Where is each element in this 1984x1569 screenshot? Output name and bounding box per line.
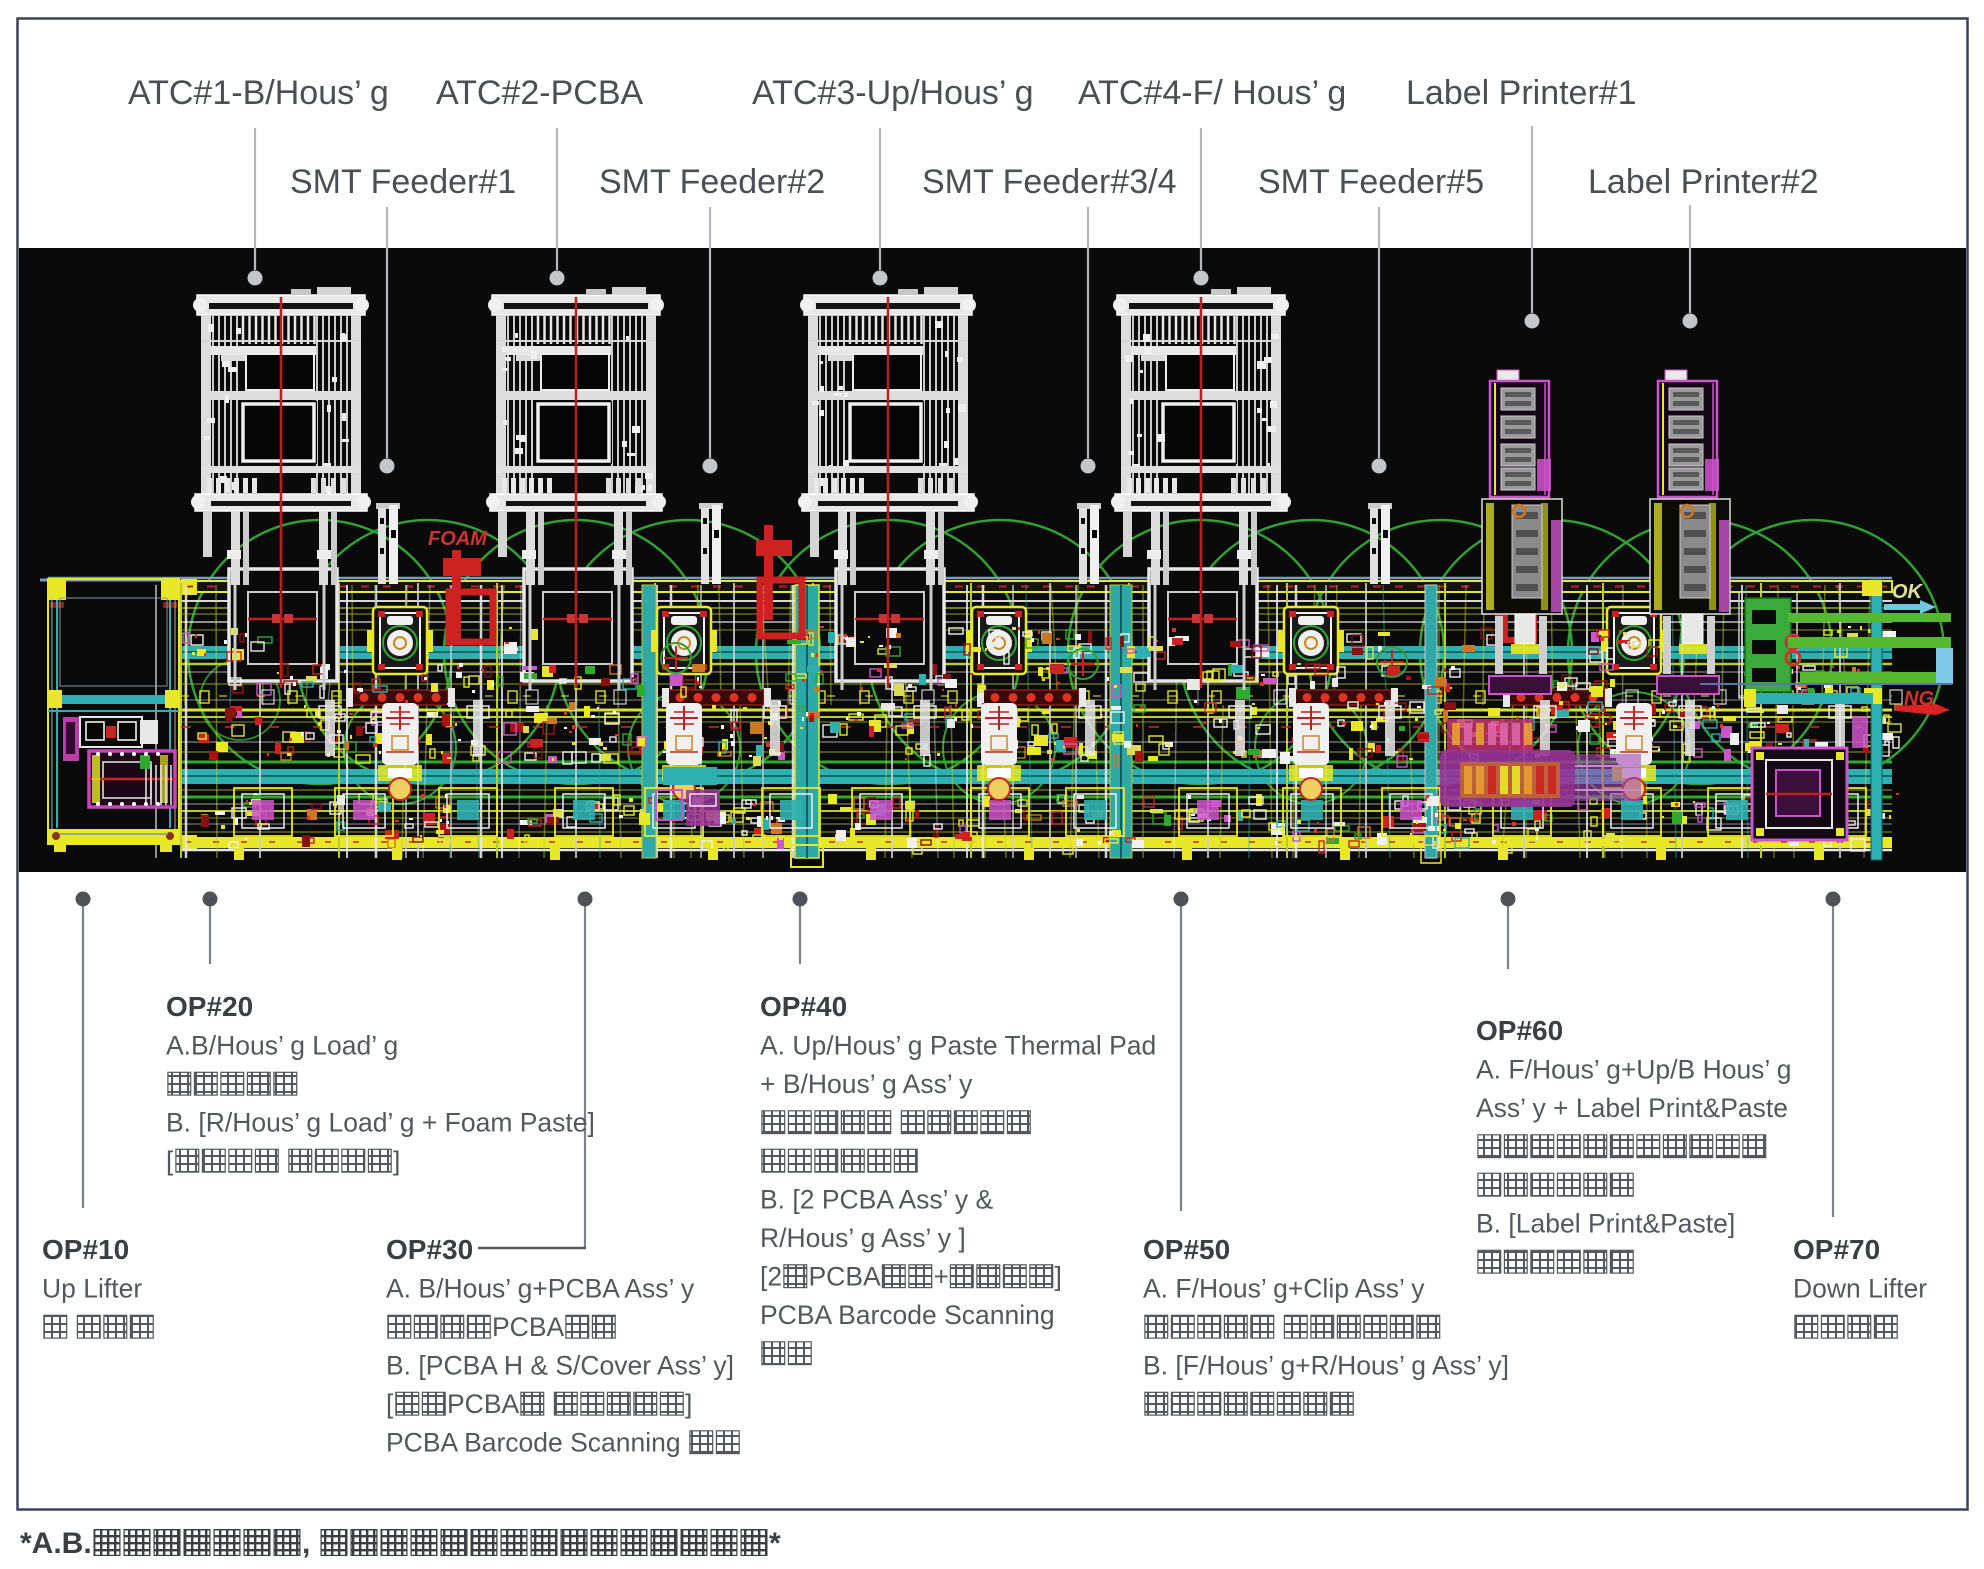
- svg-text:PCBA: PCBA: [447, 1389, 519, 1419]
- svg-text:SMT Feeder#3/4: SMT Feeder#3/4: [922, 163, 1177, 201]
- svg-text:OP#60: OP#60: [1476, 1015, 1563, 1046]
- svg-text:A. F/Hous’ g+Up/B Hous’ g: A. F/Hous’ g+Up/B Hous’ g: [1476, 1055, 1791, 1085]
- svg-text:]: ]: [1055, 1262, 1062, 1292]
- svg-text:B. [PCBA H & S/Cover Ass’ y]: B. [PCBA H & S/Cover Ass’ y]: [386, 1351, 734, 1381]
- svg-text:SMT Feeder#2: SMT Feeder#2: [599, 163, 825, 201]
- svg-text:A. Up/Hous’ g Paste Thermal Pa: A. Up/Hous’ g Paste Thermal Pad: [760, 1031, 1156, 1061]
- svg-text:Down Lifter: Down Lifter: [1793, 1274, 1927, 1304]
- svg-text:ATC#1-B/Hous’ g: ATC#1-B/Hous’ g: [128, 74, 389, 112]
- svg-text:+ B/Hous’ g Ass’ y: + B/Hous’ g Ass’ y: [760, 1069, 973, 1099]
- svg-text:*A.B.: *A.B.: [20, 1527, 92, 1560]
- svg-text:R/Hous’ g Ass’ y ]: R/Hous’ g Ass’ y ]: [760, 1223, 966, 1253]
- svg-text:[: [: [386, 1389, 394, 1419]
- svg-text:B. [F/Hous’ g+R/Hous’ g Ass’ y: B. [F/Hous’ g+R/Hous’ g Ass’ y]: [1143, 1351, 1509, 1381]
- svg-text:Label Printer#1: Label Printer#1: [1406, 74, 1637, 112]
- svg-text:A. F/Hous’ g+Clip Ass’ y: A. F/Hous’ g+Clip Ass’ y: [1143, 1274, 1425, 1304]
- svg-text:PCBA: PCBA: [492, 1312, 564, 1342]
- svg-text:OK: OK: [1892, 581, 1924, 603]
- svg-text:[: [: [166, 1146, 174, 1176]
- svg-text:]: ]: [685, 1389, 692, 1419]
- svg-text:OP#20: OP#20: [166, 991, 253, 1022]
- svg-text:Label Printer#2: Label Printer#2: [1588, 163, 1819, 201]
- svg-text:A. B/Hous’ g+PCBA Ass’ y: A. B/Hous’ g+PCBA Ass’ y: [386, 1274, 695, 1304]
- svg-text:]: ]: [393, 1146, 400, 1176]
- svg-text:*: *: [769, 1527, 781, 1560]
- svg-text:PCBA Barcode Scanning: PCBA Barcode Scanning: [386, 1428, 681, 1458]
- svg-text:[2: [2: [760, 1262, 782, 1292]
- svg-text:PCBA: PCBA: [809, 1262, 881, 1292]
- svg-text:ATC#4-F/ Hous’ g: ATC#4-F/ Hous’ g: [1078, 74, 1346, 112]
- svg-text:OP#50: OP#50: [1143, 1234, 1230, 1265]
- svg-text:OP#10: OP#10: [42, 1234, 129, 1265]
- svg-text:OP#30: OP#30: [386, 1234, 473, 1265]
- svg-text:SMT Feeder#5: SMT Feeder#5: [1258, 163, 1484, 201]
- svg-text:A.B/Hous’ g Load’ g: A.B/Hous’ g Load’ g: [166, 1031, 398, 1061]
- svg-text:PCBA Barcode Scanning: PCBA Barcode Scanning: [760, 1300, 1055, 1330]
- svg-text:B. [Label Print&Paste]: B. [Label Print&Paste]: [1476, 1209, 1735, 1239]
- svg-text:Ass’ y + Label Print&Paste: Ass’ y + Label Print&Paste: [1476, 1093, 1788, 1123]
- svg-text:Up Lifter: Up Lifter: [42, 1274, 142, 1304]
- svg-text:ATC#3-Up/Hous’ g: ATC#3-Up/Hous’ g: [752, 74, 1034, 112]
- svg-text:OP#70: OP#70: [1793, 1234, 1880, 1265]
- svg-text:+: +: [934, 1262, 949, 1292]
- svg-text:,: ,: [302, 1527, 310, 1560]
- svg-text:ATC#2-PCBA: ATC#2-PCBA: [436, 74, 644, 112]
- svg-text:SMT Feeder#1: SMT Feeder#1: [290, 163, 516, 201]
- svg-text:B. [R/Hous’ g Load’ g + Foam P: B. [R/Hous’ g Load’ g + Foam Paste]: [166, 1108, 595, 1138]
- svg-text:FOAM: FOAM: [428, 528, 488, 550]
- svg-text:B. [2 PCBA Ass’ y &: B. [2 PCBA Ass’ y &: [760, 1185, 994, 1215]
- svg-text:OP#40: OP#40: [760, 991, 847, 1022]
